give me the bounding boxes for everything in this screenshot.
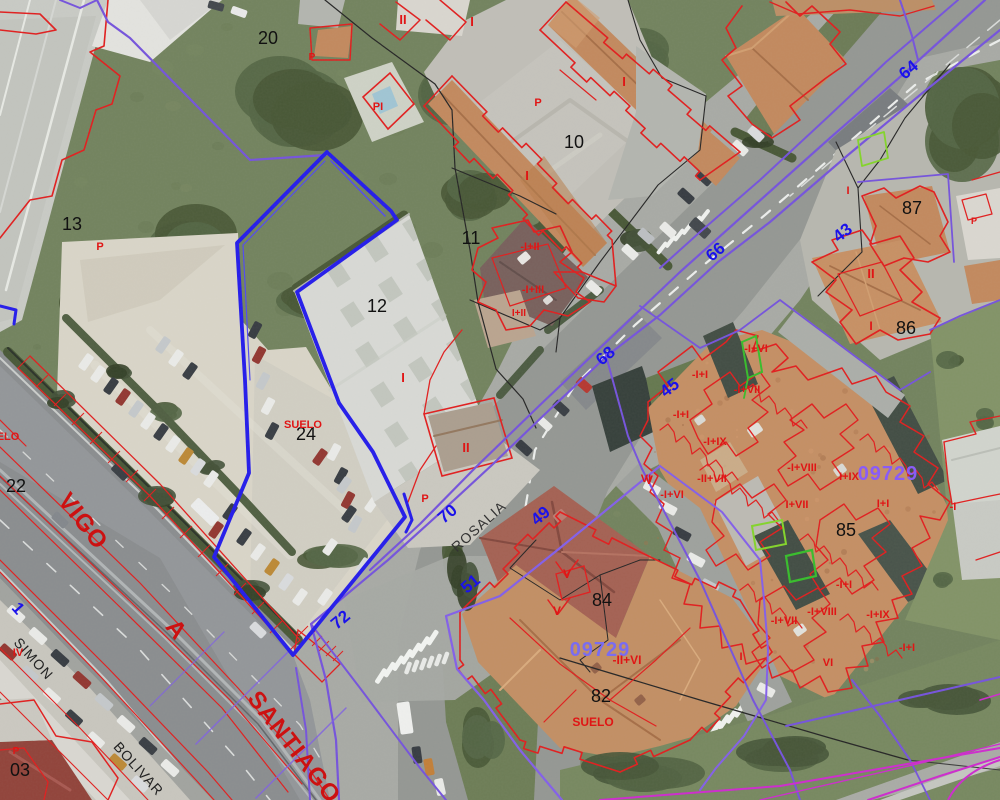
svg-text:-I+III: -I+III [522, 284, 544, 296]
svg-text:P: P [534, 97, 541, 109]
svg-text:P: P [971, 216, 977, 226]
svg-text:V: V [645, 473, 653, 487]
svg-text:-I+VI: -I+VI [660, 489, 684, 501]
svg-text:-I+IX: -I+IX [866, 609, 890, 621]
svg-text:12: 12 [367, 296, 387, 316]
svg-text:PI: PI [373, 101, 383, 113]
svg-text:-I+I: -I+I [692, 369, 708, 381]
svg-text:-I+I: -I+I [899, 642, 915, 654]
svg-text:-II+VI: -II+VI [612, 653, 641, 667]
svg-text:-II+VII: -II+VII [697, 473, 727, 485]
svg-text:82: 82 [591, 686, 611, 706]
svg-text:V: V [553, 604, 561, 618]
svg-text:V: V [563, 567, 571, 581]
svg-text:22: 22 [6, 476, 26, 496]
svg-text:VI: VI [823, 657, 833, 669]
svg-text:I+II: I+II [512, 308, 526, 319]
svg-text:-I+VIII: -I+VIII [807, 606, 837, 618]
svg-text:-I+II: -I+II [520, 241, 539, 253]
svg-text:-I+VII: -I+VII [734, 384, 761, 396]
svg-text:P: P [309, 52, 316, 63]
svg-text:I: I [401, 370, 405, 385]
svg-text:SUELO: SUELO [572, 715, 613, 729]
svg-text:P: P [96, 241, 103, 253]
svg-text:-I: -I [950, 501, 957, 513]
svg-text:10: 10 [564, 132, 584, 152]
svg-text:II: II [462, 440, 469, 455]
svg-text:84: 84 [592, 590, 612, 610]
svg-text:P: P [421, 493, 428, 505]
svg-text:I: I [739, 651, 742, 663]
svg-text:20: 20 [258, 28, 278, 48]
svg-text:-I+IX: -I+IX [703, 436, 727, 448]
svg-text:11: 11 [462, 228, 481, 248]
svg-text:13: 13 [62, 214, 82, 234]
svg-text:-I+VII: -I+VII [771, 615, 798, 627]
svg-text:IV: IV [13, 647, 24, 659]
svg-text:SUELO: SUELO [284, 419, 322, 431]
svg-text:II: II [867, 266, 874, 281]
svg-text:I: I [846, 185, 849, 197]
svg-text:P: P [13, 746, 20, 757]
svg-text:09729: 09729 [858, 463, 919, 485]
svg-text:I+IX: I+IX [839, 471, 860, 483]
svg-text:I+I: I+I [877, 498, 890, 510]
svg-text:-I+VI: -I+VI [744, 343, 768, 355]
svg-text:87: 87 [902, 198, 922, 218]
svg-text:-I+VIII: -I+VIII [787, 462, 817, 474]
svg-text:I: I [622, 74, 626, 89]
svg-text:I: I [869, 319, 872, 333]
svg-text:I: I [470, 14, 474, 29]
svg-text:I: I [525, 168, 529, 183]
svg-text:86: 86 [896, 318, 916, 338]
svg-text:-I+I: -I+I [836, 579, 852, 591]
svg-text:II: II [399, 12, 406, 27]
svg-text:I+VII: I+VII [786, 499, 809, 511]
svg-text:ELO: ELO [0, 431, 20, 443]
svg-text:03: 03 [10, 760, 30, 780]
svg-text:85: 85 [836, 520, 856, 540]
svg-text:-I+I: -I+I [673, 409, 689, 421]
